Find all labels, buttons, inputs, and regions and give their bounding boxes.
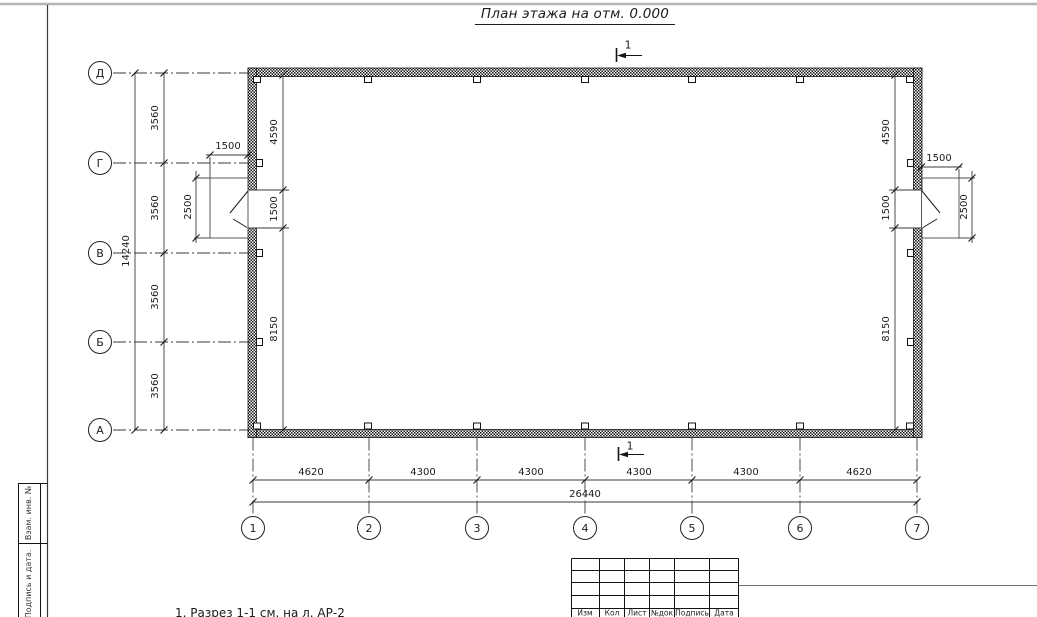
door-leaf-right [922, 191, 940, 228]
drawing-title: План этажа на отм. 0.000 [475, 6, 675, 25]
note-text: 1. Разрез 1-1 см. на л. АР-2 [175, 606, 345, 617]
section-mark-top-label: 1 [625, 40, 632, 51]
section-arrow-top-icon [617, 53, 626, 58]
dim-col-spacing-2: 4300 [410, 468, 435, 478]
dim-door-left-depth: 2500 [184, 194, 194, 219]
dim-row-total: 14240 [122, 235, 132, 267]
margin-field-podpis-data: Подпись и дата. [25, 550, 33, 617]
dim-col-spacing-6: 4620 [846, 468, 871, 478]
section-cut-marks [617, 48, 645, 461]
axis-bubble-col-7: 7 [905, 516, 929, 540]
wall-pilasters [254, 77, 914, 430]
axis-bubble-col-6: 6 [788, 516, 812, 540]
axis-grid-lines [113, 73, 917, 516]
dimension-ticks [132, 70, 976, 506]
dim-col-spacing-3: 4300 [518, 468, 543, 478]
axis-bubble-col-2: 2 [357, 516, 381, 540]
axis-bubble-row-3: В [88, 241, 112, 265]
dim-door-right-width: 1500 [926, 154, 951, 164]
door-leaves [230, 191, 940, 228]
sheet-frame [0, 4, 1037, 617]
dim-inner-right-1: 4590 [882, 119, 892, 144]
margin-field-vzam-inv: Взам. инв. № [25, 486, 33, 540]
dim-door-right-depth: 2500 [960, 194, 970, 219]
dim-inner-left-1: 4590 [270, 119, 280, 144]
dim-row-spacing-2: 3560 [151, 195, 161, 220]
title-block-header-ndok: №док [651, 609, 673, 617]
title-block-header-data: Дата [714, 609, 733, 617]
dim-inner-right-3: 8150 [882, 316, 892, 341]
dim-inner-left-3: 8150 [270, 316, 280, 341]
axis-bubble-col-3: 3 [465, 516, 489, 540]
porch-left [210, 178, 248, 238]
dim-door-left-width: 1500 [215, 142, 240, 152]
axis-bubble-row-2: Г [88, 151, 112, 175]
door-leaf-left [230, 191, 248, 228]
dim-row-spacing-3: 3560 [151, 284, 161, 309]
dim-inner-right-2: 1500 [882, 195, 892, 220]
dim-row-spacing-1: 3560 [151, 105, 161, 130]
entrance-porches [210, 178, 959, 238]
dim-row-spacing-4: 3560 [151, 373, 161, 398]
axis-bubble-col-5: 5 [680, 516, 704, 540]
porch-right [922, 178, 960, 238]
axis-bubble-col-4: 4 [573, 516, 597, 540]
axis-bubble-row-4: Б [88, 330, 112, 354]
axis-bubble-row-1: Д [88, 61, 112, 85]
section-mark-bottom-label: 1 [627, 441, 634, 452]
building-walls [247, 68, 923, 438]
dim-col-total: 26440 [569, 490, 601, 500]
title-block-header-list: Лист [627, 609, 646, 617]
dim-col-spacing-1: 4620 [298, 468, 323, 478]
drawing-sheet: План этажа на отм. 0.000 Д Г В Б А 1 2 3… [0, 0, 1037, 617]
title-block-header-izm: Изм [577, 609, 592, 617]
door-opening-left [247, 190, 258, 228]
dim-col-spacing-4: 4300 [626, 468, 651, 478]
title-block-header-podpis: Подпись [675, 609, 709, 617]
title-block-header-kol: Кол [605, 609, 620, 617]
axis-bubble-col-1: 1 [241, 516, 265, 540]
axis-bubble-row-5: А [88, 418, 112, 442]
dim-inner-left-2: 1500 [270, 196, 280, 221]
section-arrow-bottom-icon [619, 452, 628, 457]
dim-col-spacing-5: 4300 [733, 468, 758, 478]
